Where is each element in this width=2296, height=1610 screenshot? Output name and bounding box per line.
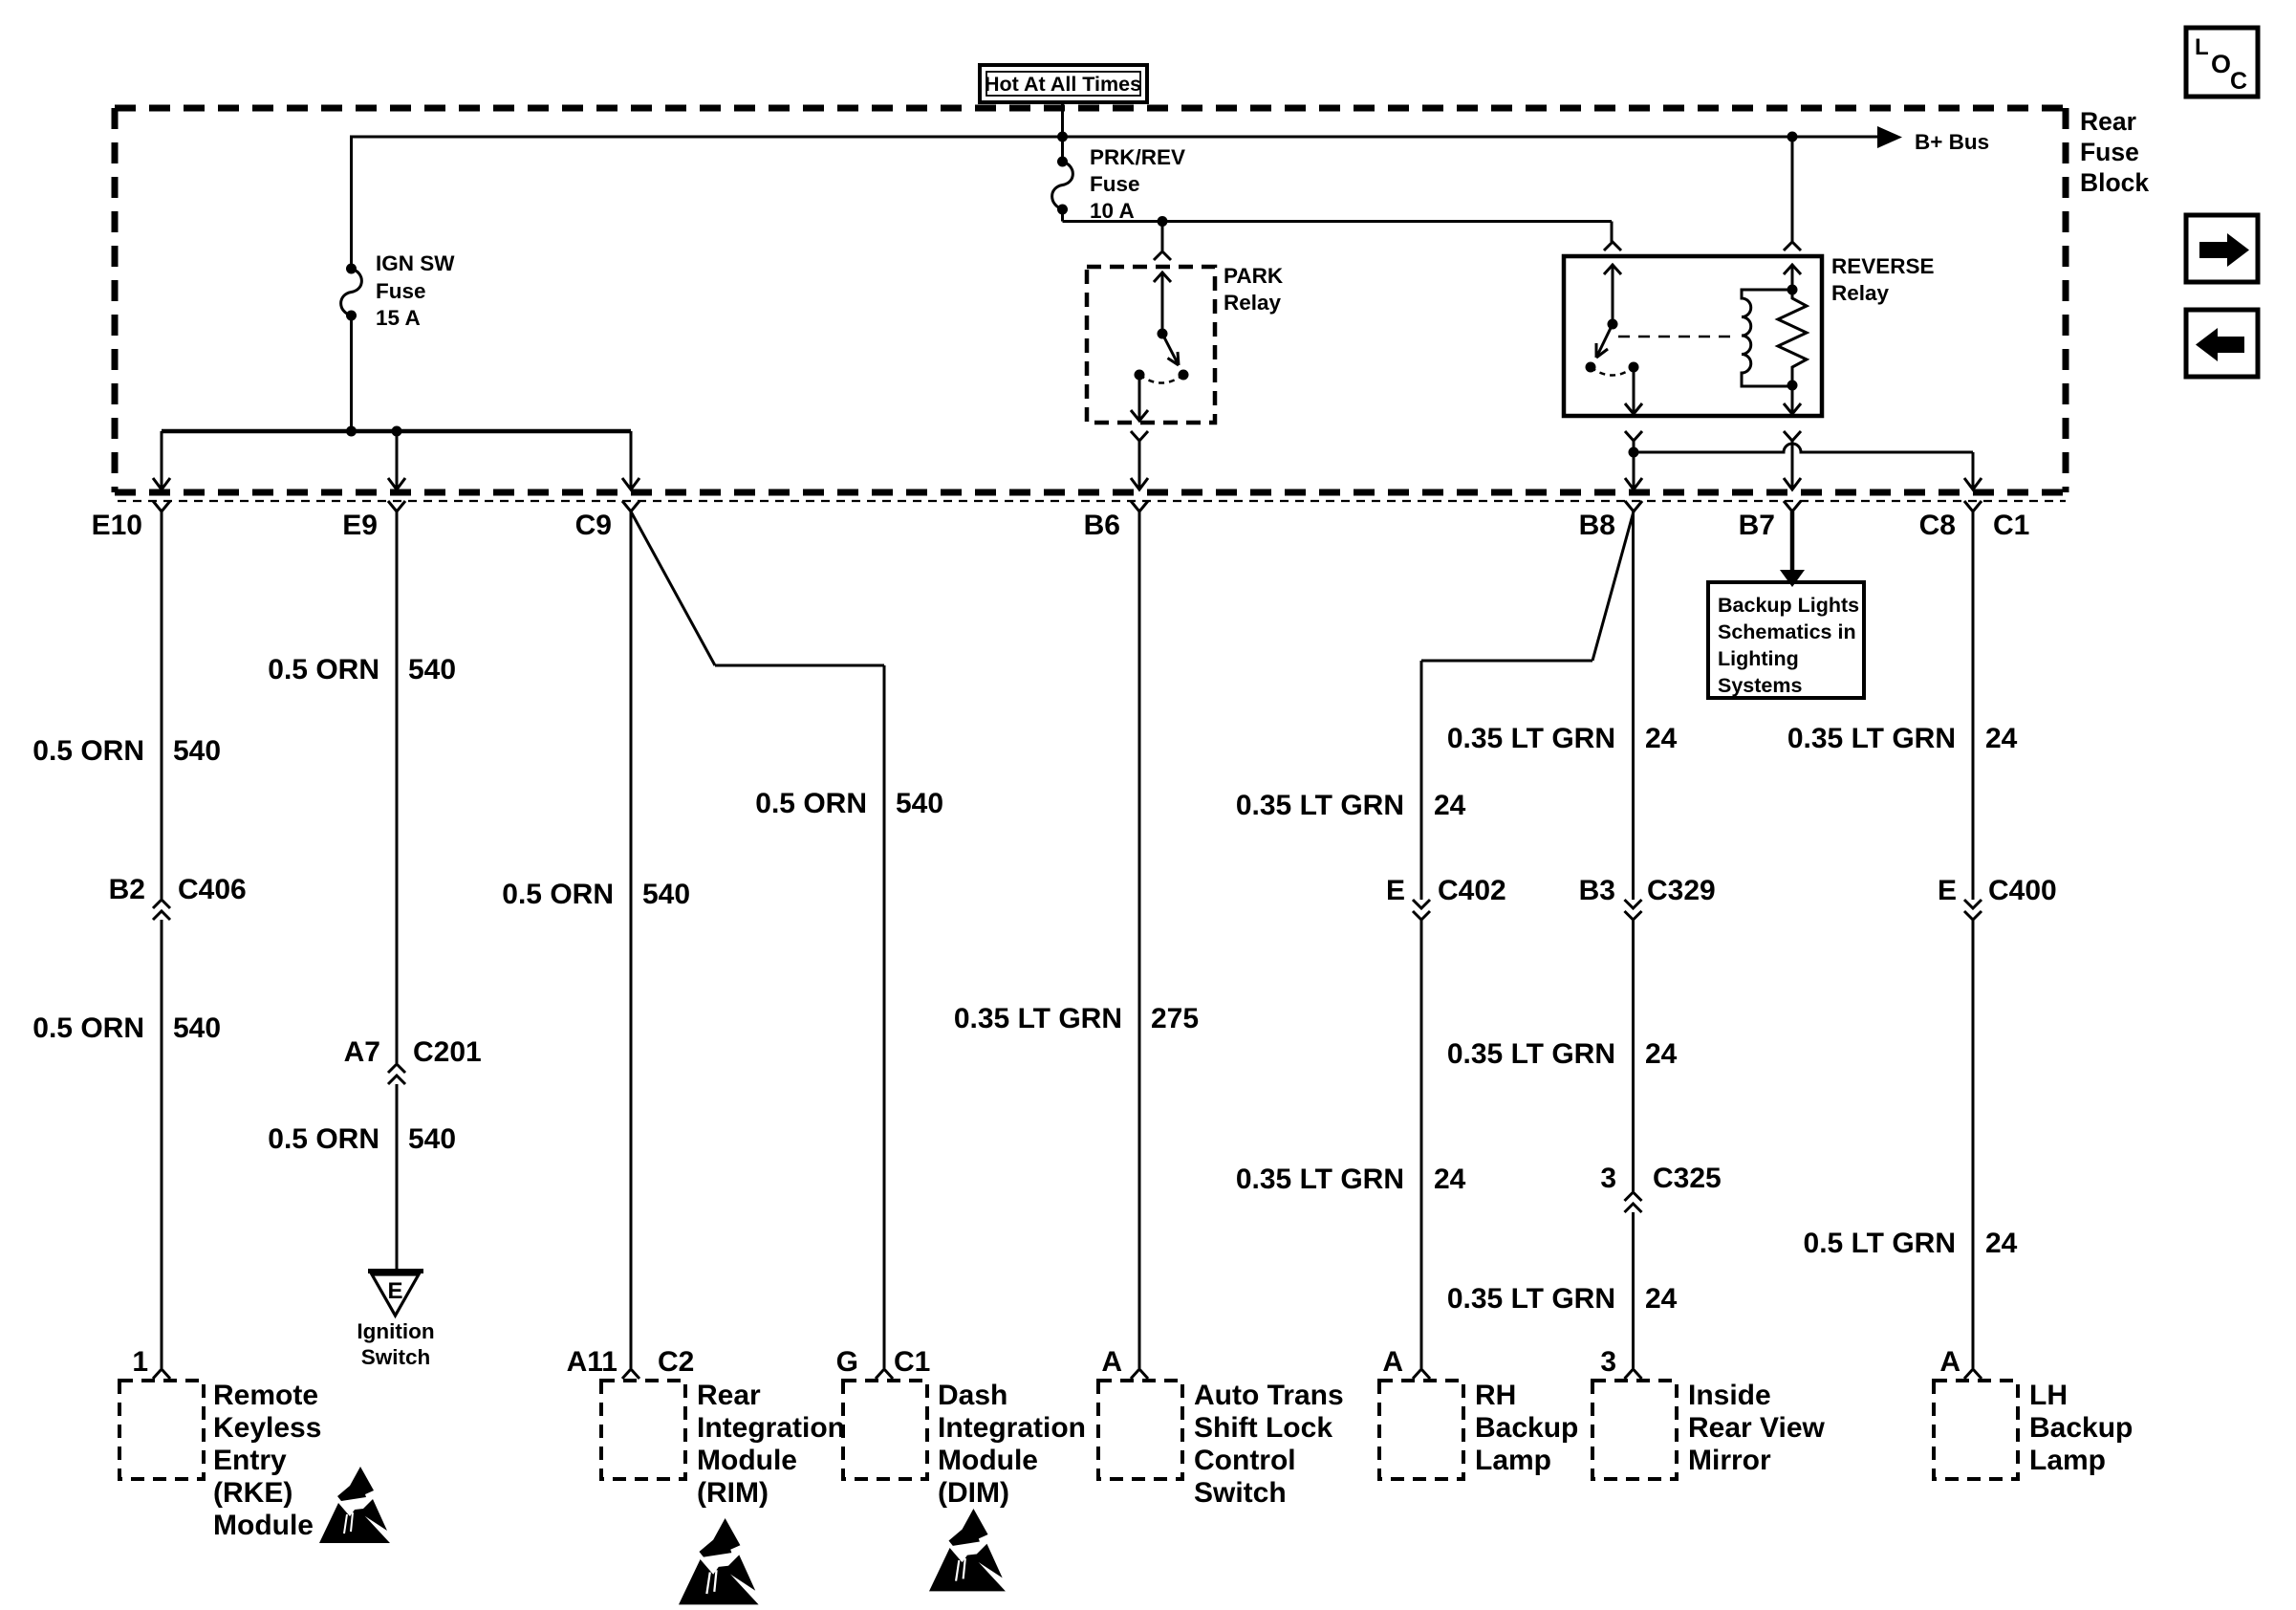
svg-text:E: E xyxy=(1386,875,1405,906)
svg-text:Backup: Backup xyxy=(1475,1412,1578,1444)
svg-text:24: 24 xyxy=(1985,1228,2018,1259)
svg-text:Keyless: Keyless xyxy=(213,1412,321,1444)
svg-text:24: 24 xyxy=(1645,1038,1678,1070)
svg-text:C1: C1 xyxy=(894,1346,930,1378)
svg-text:Integration: Integration xyxy=(697,1412,845,1444)
svg-text:C: C xyxy=(2230,68,2247,95)
svg-text:1: 1 xyxy=(132,1346,148,1378)
svg-text:24: 24 xyxy=(1645,723,1678,754)
svg-text:540: 540 xyxy=(408,654,456,685)
svg-text:B7: B7 xyxy=(1739,510,1775,541)
svg-text:0.35 LT GRN: 0.35 LT GRN xyxy=(1787,723,1956,754)
svg-text:C406: C406 xyxy=(178,874,247,905)
svg-text:IGN SW: IGN SW xyxy=(376,251,455,275)
svg-text:Hot At All Times: Hot At All Times xyxy=(985,73,1141,96)
svg-text:Lighting: Lighting xyxy=(1718,647,1799,670)
svg-text:24: 24 xyxy=(1645,1283,1678,1315)
svg-text:540: 540 xyxy=(408,1123,456,1155)
svg-text:540: 540 xyxy=(173,735,221,767)
svg-text:A7: A7 xyxy=(344,1036,380,1068)
svg-text:Backup: Backup xyxy=(2029,1412,2133,1444)
svg-text:24: 24 xyxy=(1434,1164,1466,1195)
svg-text:Fuse: Fuse xyxy=(2080,138,2139,166)
svg-text:0.5 ORN: 0.5 ORN xyxy=(502,879,614,910)
svg-text:C1: C1 xyxy=(1993,510,2029,541)
svg-text:A11: A11 xyxy=(567,1346,617,1378)
svg-text:0.5 ORN: 0.5 ORN xyxy=(755,788,867,819)
svg-text:REVERSE: REVERSE xyxy=(1831,254,1935,278)
svg-text:(RIM): (RIM) xyxy=(697,1477,769,1509)
svg-text:(DIM): (DIM) xyxy=(938,1477,1009,1509)
svg-text:Module: Module xyxy=(213,1510,314,1541)
svg-text:B3: B3 xyxy=(1579,875,1615,906)
svg-text:0.5 ORN: 0.5 ORN xyxy=(268,654,379,685)
svg-text:A: A xyxy=(1382,1346,1403,1378)
svg-text:Switch: Switch xyxy=(361,1345,431,1369)
svg-text:A: A xyxy=(1939,1346,1960,1378)
svg-text:3: 3 xyxy=(1600,1346,1616,1378)
svg-text:C9: C9 xyxy=(575,510,612,541)
svg-text:Systems: Systems xyxy=(1718,674,1802,697)
svg-text:3: 3 xyxy=(1600,1163,1616,1194)
svg-text:24: 24 xyxy=(1985,723,2018,754)
svg-text:Mirror: Mirror xyxy=(1688,1445,1771,1476)
svg-text:E: E xyxy=(387,1278,402,1304)
svg-text:E: E xyxy=(1938,875,1957,906)
svg-text:C325: C325 xyxy=(1653,1163,1722,1194)
svg-text:0.5 ORN: 0.5 ORN xyxy=(268,1123,379,1155)
svg-text:Lamp: Lamp xyxy=(1475,1445,1551,1476)
svg-text:15 A: 15 A xyxy=(376,306,421,330)
svg-text:Control: Control xyxy=(1194,1445,1296,1476)
svg-text:C400: C400 xyxy=(1988,875,2057,906)
svg-text:C8: C8 xyxy=(1919,510,1956,541)
svg-text:Fuse: Fuse xyxy=(376,279,426,303)
svg-text:Lamp: Lamp xyxy=(2029,1445,2106,1476)
svg-text:G: G xyxy=(836,1346,858,1378)
svg-text:Rear: Rear xyxy=(2080,107,2136,136)
svg-text:O: O xyxy=(2211,50,2231,78)
svg-text:0.35 LT GRN: 0.35 LT GRN xyxy=(1447,1283,1615,1315)
svg-text:C201: C201 xyxy=(413,1036,482,1068)
svg-text:LH: LH xyxy=(2029,1380,2068,1411)
svg-text:540: 540 xyxy=(896,788,943,819)
svg-text:Shift Lock: Shift Lock xyxy=(1194,1412,1332,1444)
svg-text:Inside: Inside xyxy=(1688,1380,1771,1411)
svg-text:B8: B8 xyxy=(1579,510,1615,541)
svg-text:Auto Trans: Auto Trans xyxy=(1194,1380,1344,1411)
svg-text:PRK/REV: PRK/REV xyxy=(1090,145,1185,169)
svg-text:Rear View: Rear View xyxy=(1688,1412,1826,1444)
svg-text:0.35 LT GRN: 0.35 LT GRN xyxy=(1447,723,1615,754)
svg-text:PARK: PARK xyxy=(1224,264,1284,288)
svg-text:E9: E9 xyxy=(342,510,378,541)
svg-text:Rear: Rear xyxy=(697,1380,761,1411)
svg-text:540: 540 xyxy=(642,879,690,910)
svg-text:0.5 ORN: 0.5 ORN xyxy=(32,1012,144,1044)
svg-text:10 A: 10 A xyxy=(1090,199,1135,223)
svg-text:A: A xyxy=(1101,1346,1122,1378)
svg-text:0.5 LT GRN: 0.5 LT GRN xyxy=(1804,1228,1956,1259)
svg-text:Module: Module xyxy=(938,1445,1038,1476)
svg-text:L: L xyxy=(2195,34,2209,60)
svg-text:E10: E10 xyxy=(92,510,142,541)
svg-text:Remote: Remote xyxy=(213,1380,318,1411)
svg-text:Relay: Relay xyxy=(1831,281,1890,305)
svg-text:C2: C2 xyxy=(658,1346,694,1378)
svg-text:Module: Module xyxy=(697,1445,797,1476)
svg-text:C402: C402 xyxy=(1438,875,1506,906)
svg-text:0.5 ORN: 0.5 ORN xyxy=(32,735,144,767)
svg-text:Dash: Dash xyxy=(938,1380,1007,1411)
svg-text:RH: RH xyxy=(1475,1380,1516,1411)
svg-text:Switch: Switch xyxy=(1194,1477,1287,1509)
svg-text:540: 540 xyxy=(173,1012,221,1044)
svg-text:Backup Lights: Backup Lights xyxy=(1718,594,1859,617)
svg-text:Integration: Integration xyxy=(938,1412,1086,1444)
svg-text:0.35 LT GRN: 0.35 LT GRN xyxy=(1447,1038,1615,1070)
svg-text:B+ Bus: B+ Bus xyxy=(1915,130,1989,154)
svg-text:C329: C329 xyxy=(1647,875,1716,906)
svg-text:24: 24 xyxy=(1434,790,1466,821)
svg-text:B2: B2 xyxy=(109,874,145,905)
svg-text:0.35 LT GRN: 0.35 LT GRN xyxy=(954,1003,1122,1034)
svg-text:Entry: Entry xyxy=(213,1445,287,1476)
svg-text:0.35 LT GRN: 0.35 LT GRN xyxy=(1236,1164,1404,1195)
svg-text:(RKE): (RKE) xyxy=(213,1477,292,1509)
svg-text:Relay: Relay xyxy=(1224,291,1282,315)
svg-text:Fuse: Fuse xyxy=(1090,172,1140,196)
svg-text:0.35 LT GRN: 0.35 LT GRN xyxy=(1236,790,1404,821)
svg-text:Ignition: Ignition xyxy=(357,1319,434,1343)
svg-text:275: 275 xyxy=(1151,1003,1199,1034)
svg-text:Block: Block xyxy=(2080,168,2149,197)
svg-text:B6: B6 xyxy=(1084,510,1120,541)
svg-text:Schematics in: Schematics in xyxy=(1718,620,1856,643)
